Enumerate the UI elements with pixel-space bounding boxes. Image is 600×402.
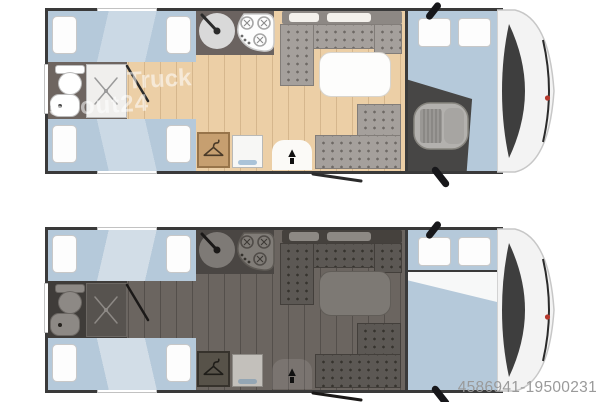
hob-icon — [234, 12, 276, 54]
corner-bench-horizontal — [315, 135, 401, 169]
pillow — [52, 235, 77, 273]
corner-bench-horizontal — [315, 354, 401, 388]
listing-number: 4586941-19500231 — [458, 379, 597, 397]
dinette-table — [319, 52, 391, 97]
entry-arrow-icon: ▲ — [286, 366, 299, 377]
driver-seat — [410, 95, 474, 157]
pillow — [52, 16, 77, 54]
entrance-door: ▲ — [272, 359, 312, 389]
dinette-sofa-left — [280, 243, 314, 305]
dinette-sofa-right — [374, 24, 402, 54]
headrest-cushion — [289, 232, 319, 241]
pillow — [166, 125, 191, 163]
wardrobe — [197, 132, 230, 168]
overcab-bed-area — [405, 8, 500, 174]
toilet-bowl — [58, 291, 82, 314]
refrigerator — [232, 354, 263, 387]
pillow — [166, 344, 191, 382]
hanger-icon — [199, 353, 228, 385]
washbasin-drain — [58, 323, 62, 327]
bed-sheet-fold — [408, 272, 497, 302]
entry-arrow-stem — [290, 158, 294, 164]
entry-arrow-stem — [290, 377, 294, 383]
dinette-sofa-right — [374, 243, 402, 273]
entrance-door: ▲ — [272, 140, 312, 170]
corner-bench-vertical — [357, 323, 401, 355]
watermark-line1: Truck — [127, 66, 192, 92]
washbasin-icon — [50, 313, 80, 336]
hanger-icon — [199, 134, 228, 166]
pillow — [52, 344, 77, 382]
fridge-handle — [238, 160, 257, 165]
entry-arrow-icon: ▲ — [286, 147, 299, 158]
fridge-handle — [238, 379, 257, 384]
brand-badge — [545, 95, 550, 100]
pillow — [418, 237, 451, 266]
headrest-cushion — [289, 13, 319, 22]
headrest-cushion — [327, 13, 371, 22]
corner-bench-vertical — [357, 104, 401, 136]
bed-head-divider — [408, 270, 497, 272]
cab-front — [497, 6, 561, 176]
motorhome-floorplan-image: ▲ — [0, 0, 600, 402]
overcab-bed-area — [405, 227, 500, 393]
dinette-sofa-left — [280, 24, 314, 86]
hob-icon — [234, 231, 276, 273]
watermark: Truck Scout24 — [47, 66, 193, 119]
cab-front — [497, 225, 561, 395]
pillow — [166, 16, 191, 54]
pillow — [458, 237, 491, 266]
pillow — [52, 125, 77, 163]
dinette-table — [319, 271, 391, 316]
refrigerator — [232, 135, 263, 168]
brand-badge — [545, 314, 550, 319]
shower-cubicle — [86, 283, 127, 337]
sink-icon — [199, 13, 235, 49]
pillow — [418, 18, 451, 47]
wardrobe — [197, 351, 230, 387]
pillow — [166, 235, 191, 273]
pillow — [458, 18, 491, 47]
headrest-cushion — [327, 232, 371, 241]
sink-icon — [199, 232, 235, 268]
floorplan-night: ▲ — [45, 227, 570, 402]
